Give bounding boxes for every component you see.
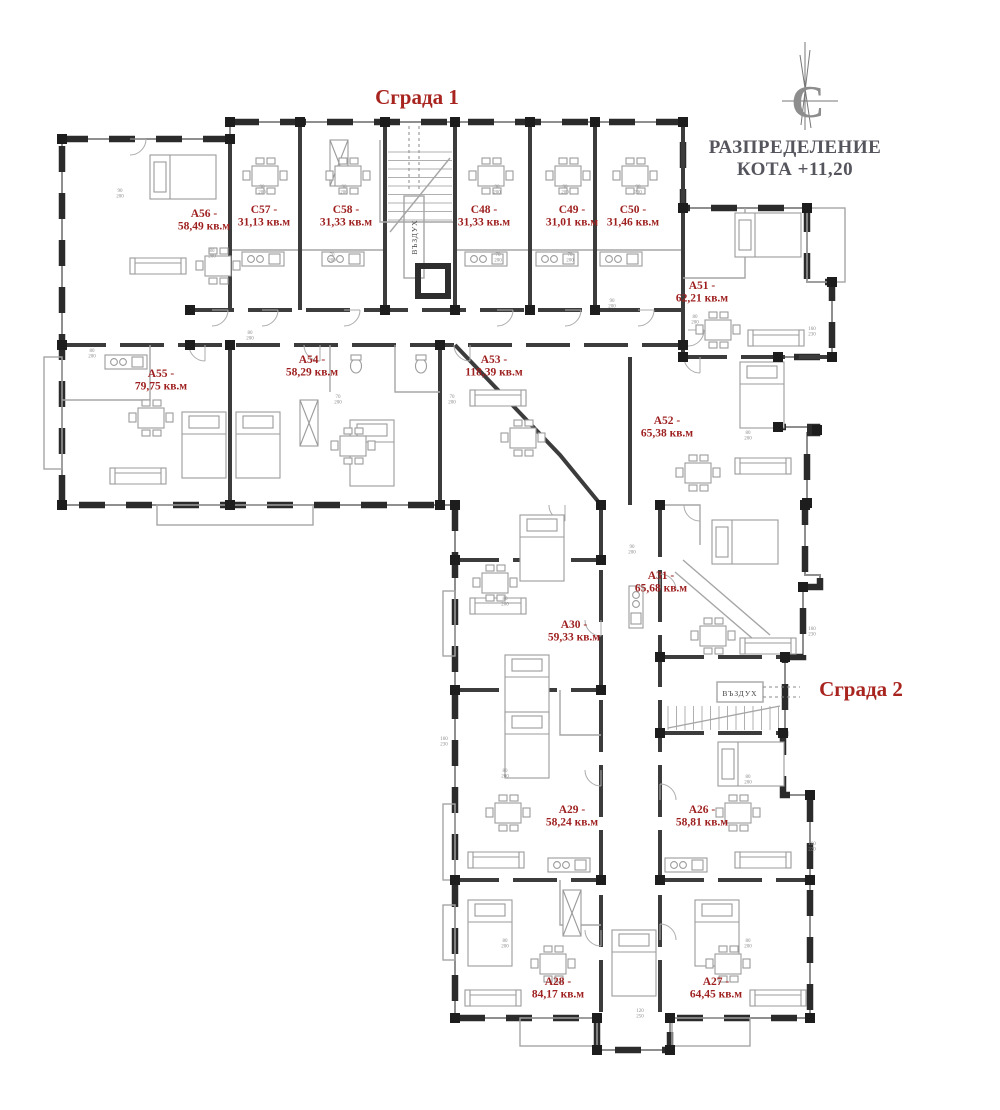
compass-north-letter: С [791, 76, 824, 127]
dimension-mark: 90200 [561, 185, 569, 196]
column [655, 728, 665, 738]
table-icon [691, 618, 735, 654]
column [802, 203, 812, 213]
column [525, 117, 535, 127]
balcony-a51 [807, 208, 845, 282]
table-icon [196, 248, 240, 284]
column [827, 277, 837, 287]
column [665, 1013, 675, 1023]
sofa-icon [740, 638, 796, 654]
apartment-label-а55: А55 -79,75 кв.м [135, 368, 187, 393]
column [596, 875, 606, 885]
column [805, 875, 815, 885]
sofa-icon [735, 852, 791, 868]
table-icon [473, 565, 517, 601]
apartment-label-а29: А29 -58,24 кв.м [546, 804, 598, 829]
column [450, 500, 460, 510]
sofa-icon [110, 468, 166, 484]
air-shaft-label-building1: ВЪЗДУХ [410, 219, 419, 254]
column [225, 134, 235, 144]
door-swing [497, 310, 513, 326]
column [450, 1013, 460, 1023]
table-icon [546, 158, 590, 194]
dimension-mark: 160230 [808, 627, 816, 638]
toilet-icon [416, 355, 427, 373]
dimension-mark: 90200 [493, 185, 501, 196]
column [590, 117, 600, 127]
column [57, 134, 67, 144]
door-swing [660, 784, 676, 800]
column [655, 652, 665, 662]
column [590, 305, 600, 315]
column [450, 117, 460, 127]
dimension-mark: 90200 [258, 185, 266, 196]
column [780, 652, 790, 662]
column [827, 352, 837, 362]
dimension-mark: 70200 [448, 395, 456, 406]
apartment-label-а30: А30 -59,33 кв.м [548, 619, 600, 644]
bed-icon [236, 412, 280, 478]
dimension-mark: 90200 [634, 185, 642, 196]
column [295, 117, 305, 127]
apartment-label-а53: А53 -118,39 кв.м [465, 354, 523, 379]
building2-title: Сграда 2 [819, 677, 903, 701]
plan-title-line1: РАЗПРЕДЕЛЕНИЕ [709, 137, 882, 158]
stairwell-building1: ВЪЗДУХ [388, 126, 452, 296]
column [805, 1013, 815, 1023]
stairwell-building2: ВЪЗДУХ [668, 682, 800, 730]
column [225, 340, 235, 350]
door-swing [212, 310, 228, 326]
column [798, 582, 808, 592]
bed-icon [740, 362, 784, 428]
dimension-mark: 160230 [808, 327, 816, 338]
sofa-icon [735, 458, 791, 474]
column [773, 352, 783, 362]
column [225, 117, 235, 127]
plan-title-line2: КОТА +11,20 [737, 159, 853, 180]
door-swing [262, 310, 278, 326]
air-shaft-label-building2: ВЪЗДУХ [722, 689, 757, 698]
kitchen-icon [548, 858, 590, 872]
bed-icon [718, 742, 784, 786]
apartment-label-а56: А56 -58,49 кв.м [178, 208, 230, 233]
bed-icon [468, 900, 512, 966]
door-swing [684, 505, 700, 521]
building1-title: Сграда 1 [375, 85, 459, 109]
dimension-mark: 80200 [88, 349, 96, 360]
compass-icon: С [782, 42, 838, 130]
apartment-label-с58: С58 -31,33 кв.м [320, 204, 372, 229]
table-icon [469, 158, 513, 194]
apartment-label-а28: А28 -84,17 кв.м [532, 976, 584, 1001]
dimension-mark: 90200 [116, 189, 124, 200]
column [435, 500, 445, 510]
dimension-mark: 80200 [744, 939, 752, 950]
column [596, 500, 606, 510]
column [800, 500, 810, 510]
door-swing [585, 770, 601, 786]
door-swing [660, 924, 676, 940]
dimension-mark: 70200 [334, 395, 342, 406]
bed-icon [182, 412, 226, 478]
column [380, 117, 390, 127]
sofa-icon [748, 330, 804, 346]
apartment-labels: А56 -58,49 кв.мС57 -31,13 кв.мС58 -31,33… [135, 204, 742, 1001]
column [678, 117, 688, 127]
kitchen-icon [242, 252, 284, 266]
apartment-label-с49: С49 -31,01 кв.м [546, 204, 598, 229]
column [525, 305, 535, 315]
column [678, 352, 688, 362]
column [450, 685, 460, 695]
column [185, 305, 195, 315]
column [773, 422, 783, 432]
balcony-a27-south [672, 1018, 750, 1046]
balcony-a28-south [520, 1018, 597, 1046]
dimension-mark: 160230 [440, 737, 448, 748]
table-icon [486, 795, 530, 831]
kitchen-icon [600, 252, 642, 266]
table-icon [696, 312, 740, 348]
stair-treads-building1 [388, 152, 452, 220]
table-icon [243, 158, 287, 194]
apartment-label-а52: А52 -65,38 кв.м [641, 415, 693, 440]
column [592, 1013, 602, 1023]
wardrobe-icon [563, 890, 581, 936]
dimension-mark: 90200 [340, 185, 348, 196]
column [678, 340, 688, 350]
column [665, 1045, 675, 1055]
bed-icon [712, 520, 778, 564]
dimension-mark: 80200 [246, 331, 254, 342]
column [435, 340, 445, 350]
column [596, 555, 606, 565]
kitchen-icon [665, 858, 707, 872]
dimension-mark: 120250 [636, 1009, 644, 1020]
table-icon [129, 400, 173, 436]
sofa-icon [465, 990, 521, 1006]
column [450, 305, 460, 315]
apartment-label-а31: А31 -65,68 кв.м [635, 570, 687, 595]
floor-plan-page: ВЪЗДУХ ВЪЗДУХ [0, 0, 1000, 1110]
dimension-mark: 90200 [628, 545, 636, 556]
floor-plan-drawing: ВЪЗДУХ ВЪЗДУХ [0, 0, 1000, 1110]
bed-icon [505, 712, 549, 778]
apartment-label-с57: С57 -31,13 кв.м [238, 204, 290, 229]
column [678, 203, 688, 213]
column [805, 790, 815, 800]
column [655, 500, 665, 510]
door-swing [344, 310, 360, 326]
bed-icon [735, 213, 801, 257]
column [778, 728, 788, 738]
dimension-mark: 80200 [744, 431, 752, 442]
sofa-icon [750, 990, 806, 1006]
column [450, 875, 460, 885]
column [596, 685, 606, 695]
sofa-icon [468, 852, 524, 868]
dimension-mark: 80200 [691, 315, 699, 326]
apartment-label-с50: С50 -31,46 кв.м [607, 204, 659, 229]
column [185, 340, 195, 350]
dimension-mark: 160220 [808, 842, 816, 853]
wardrobe-icon [300, 400, 318, 446]
dimension-mark: 90200 [608, 299, 616, 310]
kitchen-icon [105, 355, 147, 369]
door-swing [638, 310, 654, 326]
apartment-label-с48: С48 -31,33 кв.м [458, 204, 510, 229]
column [57, 500, 67, 510]
column [225, 500, 235, 510]
table-icon [501, 420, 545, 456]
door-swing [585, 930, 601, 946]
bed-icon [612, 930, 656, 996]
column [655, 875, 665, 885]
table-icon [676, 455, 720, 491]
door-swing [565, 310, 581, 326]
bed-icon [505, 655, 549, 721]
column [812, 425, 822, 435]
column [592, 1045, 602, 1055]
column [380, 305, 390, 315]
sofa-icon [130, 258, 186, 274]
column [57, 340, 67, 350]
sofa-icon [470, 390, 526, 406]
toilet-icon [351, 355, 362, 373]
elevator [418, 266, 448, 296]
column [450, 555, 460, 565]
bed-icon [520, 515, 564, 581]
bed-icon [150, 155, 216, 199]
